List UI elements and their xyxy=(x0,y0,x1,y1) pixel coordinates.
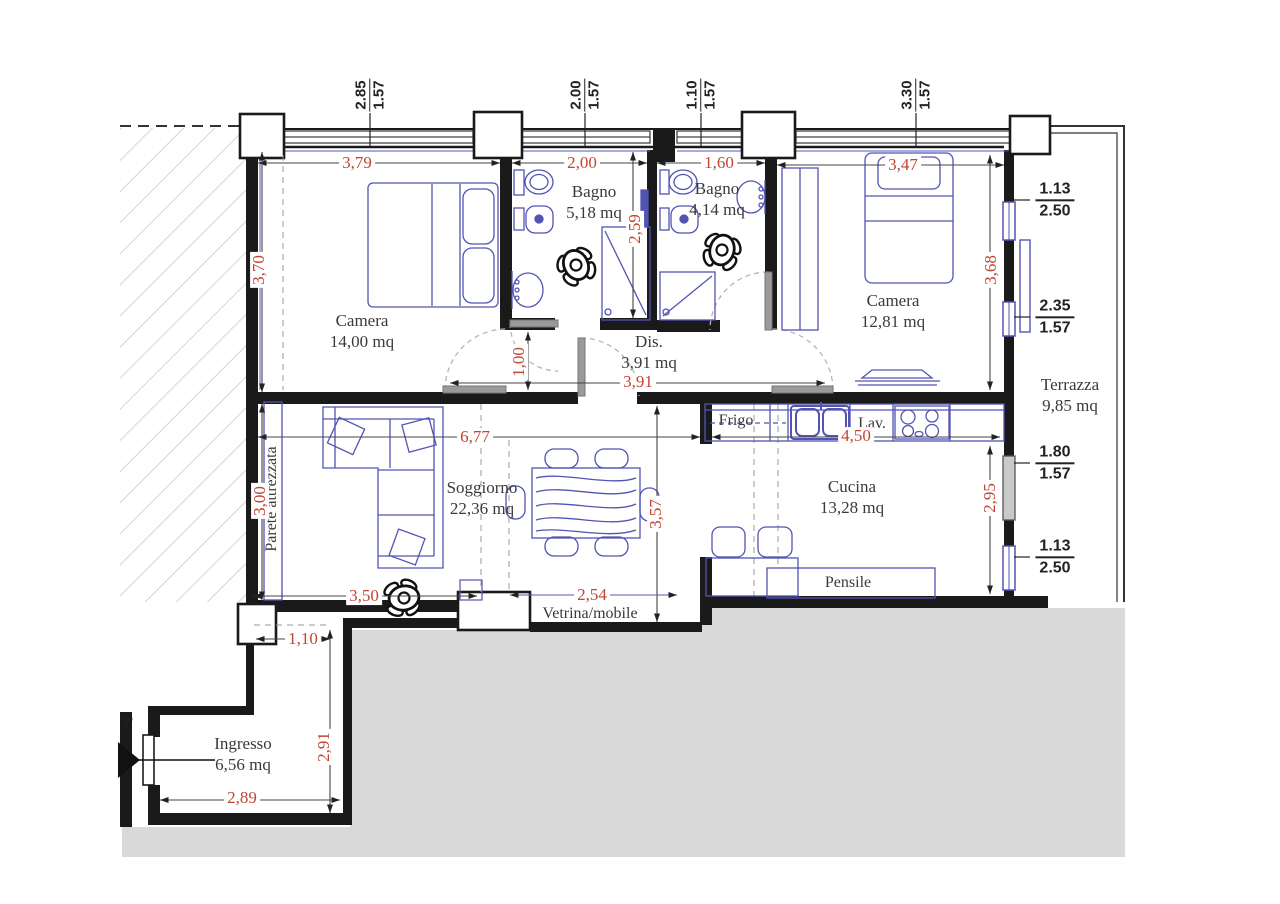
opening-dim-2: 2.35 1.57 xyxy=(1035,296,1074,337)
dim-cucina-height: 2,95 xyxy=(981,480,999,516)
edge-partial-label: 3" xyxy=(121,716,134,732)
window-dim-pair-1: 2.85 1.57 xyxy=(352,78,388,111)
window-dim-pair-3: 1.10 1.57 xyxy=(683,78,719,111)
dim-camera2-width: 3,47 xyxy=(885,156,921,174)
fridge-label: Frigo xyxy=(719,411,754,431)
dim-bagno1-width: 2,00 xyxy=(564,154,600,172)
dim-dis-door: 1,00 xyxy=(510,344,528,380)
dim-bagno2-width: 1,60 xyxy=(701,154,737,172)
dim-ingresso-height: 2,91 xyxy=(315,729,333,765)
dim-dis-width: 3,91 xyxy=(620,373,656,391)
dim-camera2-height: 3,68 xyxy=(982,252,1000,288)
dim-ingresso-width: 2,89 xyxy=(224,789,260,807)
dim-soggiorno-bottom: 3,50 xyxy=(346,587,382,605)
opening-dim-4: 1.13 2.50 xyxy=(1035,536,1074,577)
dim-vetrina-width: 2,54 xyxy=(574,586,610,604)
room-label-ingresso: Ingresso 6,56 mq xyxy=(214,733,272,776)
opening-dim-1: 1.13 2.50 xyxy=(1035,179,1074,220)
room-label-dis: Dis. 3,91 mq xyxy=(621,331,677,374)
display-cabinet-label: Vetrina/mobile xyxy=(542,604,637,624)
wall-cabinet-label: Pensile xyxy=(825,573,871,593)
dim-soggiorno-width: 6,77 xyxy=(457,428,493,446)
room-label-soggiorno: Soggiorno 22,36 mq xyxy=(447,477,518,520)
opening-dim-3: 1.80 1.57 xyxy=(1035,442,1074,483)
window-dim-pair-2: 2.00 1.57 xyxy=(567,78,603,111)
room-label-bagno1: Bagno 5,18 mq xyxy=(566,181,622,224)
dim-cucina-counter: 4,50 xyxy=(838,427,874,445)
dim-soggiorno-height: 3,00 xyxy=(251,483,269,519)
floor-plan-page: Camera 14,00 mq Bagno 5,18 mq Bagno 4,14… xyxy=(0,0,1280,904)
room-label-camera1: Camera 14,00 mq xyxy=(330,310,394,353)
dim-soggiorno-depth: 3,57 xyxy=(647,496,665,532)
dim-bagno1-depth: 2,59 xyxy=(626,211,644,247)
dim-corridor-width: 1,10 xyxy=(285,630,321,648)
window-dim-pair-4: 3.30 1.57 xyxy=(898,78,934,111)
labels-layer: Camera 14,00 mq Bagno 5,18 mq Bagno 4,14… xyxy=(0,0,1280,904)
room-label-camera2: Camera 12,81 mq xyxy=(861,290,925,333)
room-label-cucina: Cucina 13,28 mq xyxy=(820,476,884,519)
room-label-bagno2: Bagno 4,14 mq xyxy=(689,178,745,221)
dim-camera1-width: 3,79 xyxy=(339,154,375,172)
room-label-terrazza: Terrazza 9,85 mq xyxy=(1041,374,1099,417)
dim-camera1-height: 3,70 xyxy=(250,252,268,288)
